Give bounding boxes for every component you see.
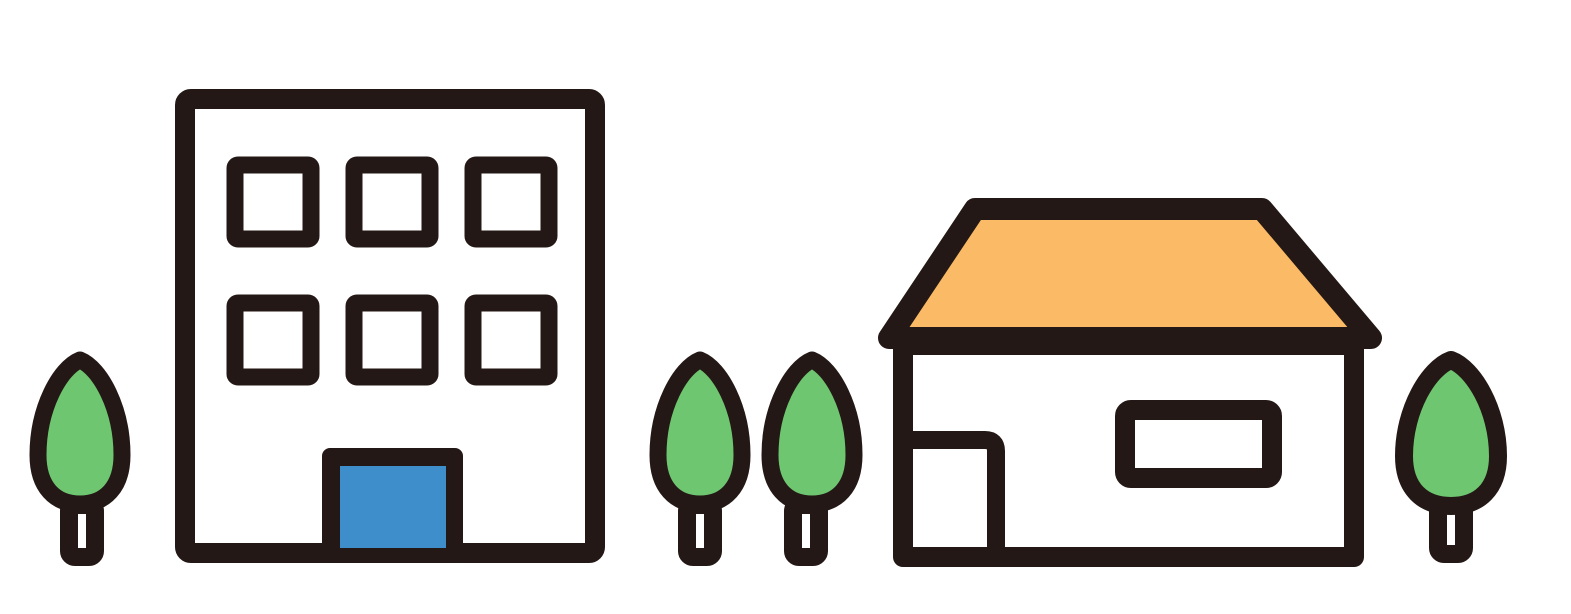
tree-foliage xyxy=(1404,360,1498,506)
house xyxy=(889,209,1371,557)
tree-trunk xyxy=(793,505,819,557)
building-window xyxy=(354,303,430,377)
office-building xyxy=(185,99,595,563)
building-window xyxy=(235,165,311,239)
building-window xyxy=(235,303,311,377)
tree-foliage xyxy=(38,360,122,504)
building-window xyxy=(354,165,430,239)
tree-foliage xyxy=(658,360,742,504)
tree-foliage xyxy=(770,360,854,504)
building-entrance-door xyxy=(340,466,446,548)
tree-trunk xyxy=(687,505,713,557)
street-illustration xyxy=(0,0,1571,614)
house-window xyxy=(1125,410,1272,478)
tree-trunk xyxy=(69,505,95,557)
illustration-canvas xyxy=(0,0,1571,614)
building-window xyxy=(473,165,549,239)
building-window xyxy=(473,303,549,377)
